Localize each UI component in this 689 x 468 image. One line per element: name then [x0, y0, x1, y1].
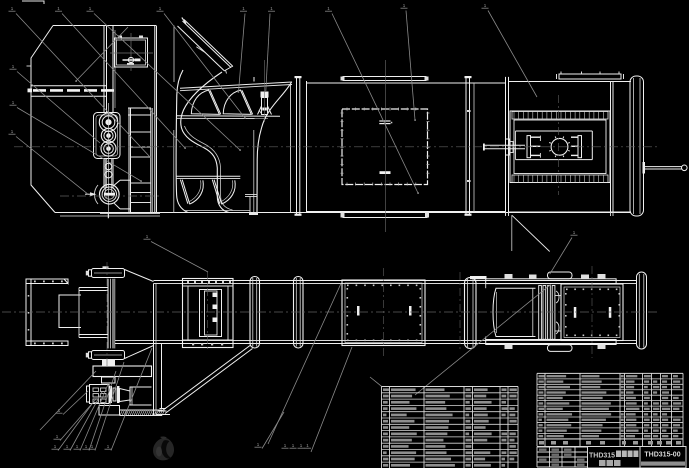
svg-text:THD315-00: THD315-00: [644, 452, 680, 459]
svg-text:THD315: THD315: [589, 453, 615, 460]
